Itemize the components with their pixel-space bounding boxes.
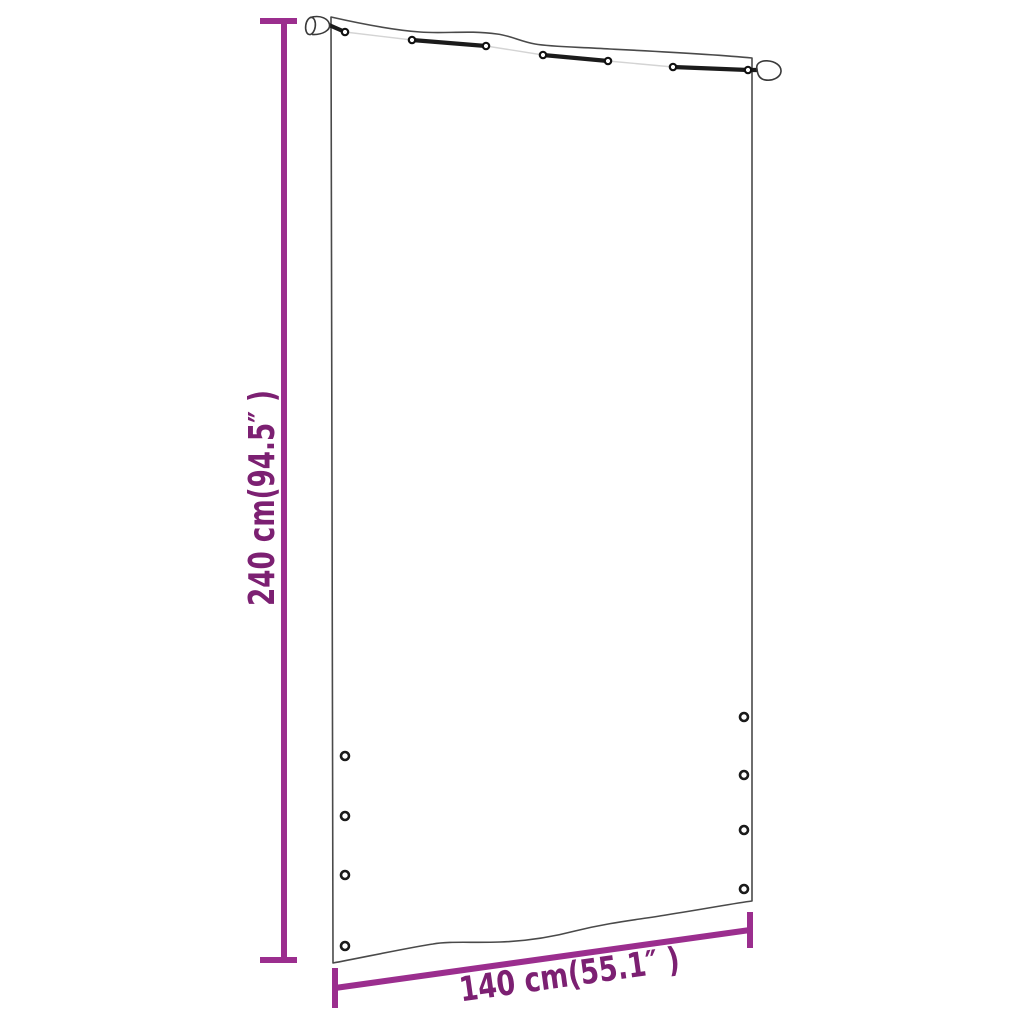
grommet: [341, 942, 349, 950]
grommet: [740, 885, 748, 893]
rod-end-cap-left: [305, 17, 330, 36]
grommet: [740, 826, 748, 834]
dimension-diagram-page: 240 cm(94.5″ ) 140 cm(55.1″ ): [0, 0, 1024, 1024]
grommet: [341, 752, 349, 760]
cord-ring: [670, 64, 676, 70]
grommet: [341, 812, 349, 820]
cord-ring: [342, 29, 348, 35]
cord-ring: [409, 37, 415, 43]
rod-end-cap-right: [757, 61, 781, 80]
cord-ring: [745, 67, 751, 73]
cord-ring: [605, 58, 611, 64]
grommet: [341, 871, 349, 879]
curtain-panel-outline: [331, 17, 752, 963]
cord-ring: [540, 52, 546, 58]
width-dimension-label: 140 cm(55.1″ ): [457, 940, 682, 1011]
height-dimension-label: 240 cm(94.5″ ): [242, 390, 283, 606]
grommet: [740, 713, 748, 721]
dimension-diagram: 240 cm(94.5″ ) 140 cm(55.1″ ): [0, 0, 1024, 1024]
cord-ring: [483, 43, 489, 49]
grommet: [740, 771, 748, 779]
